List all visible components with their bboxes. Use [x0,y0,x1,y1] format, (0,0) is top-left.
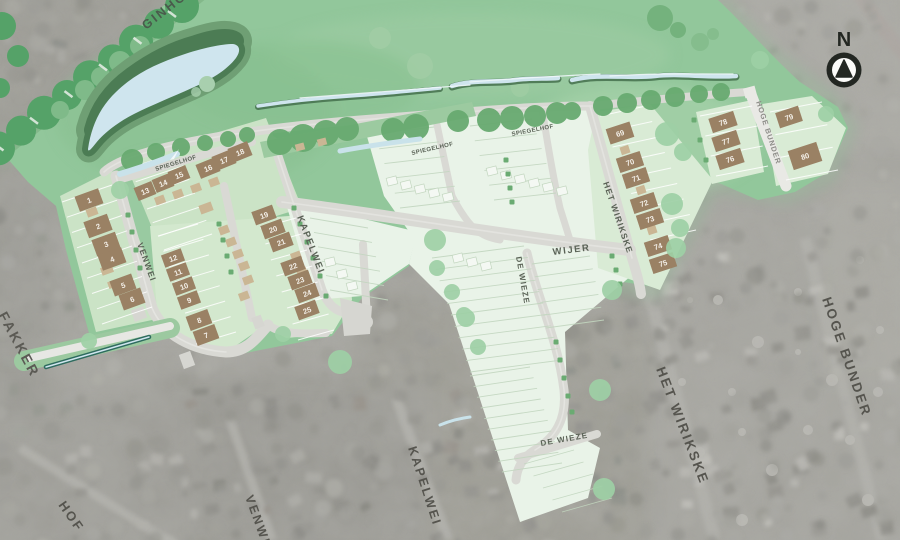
svg-text:N: N [837,29,851,51]
